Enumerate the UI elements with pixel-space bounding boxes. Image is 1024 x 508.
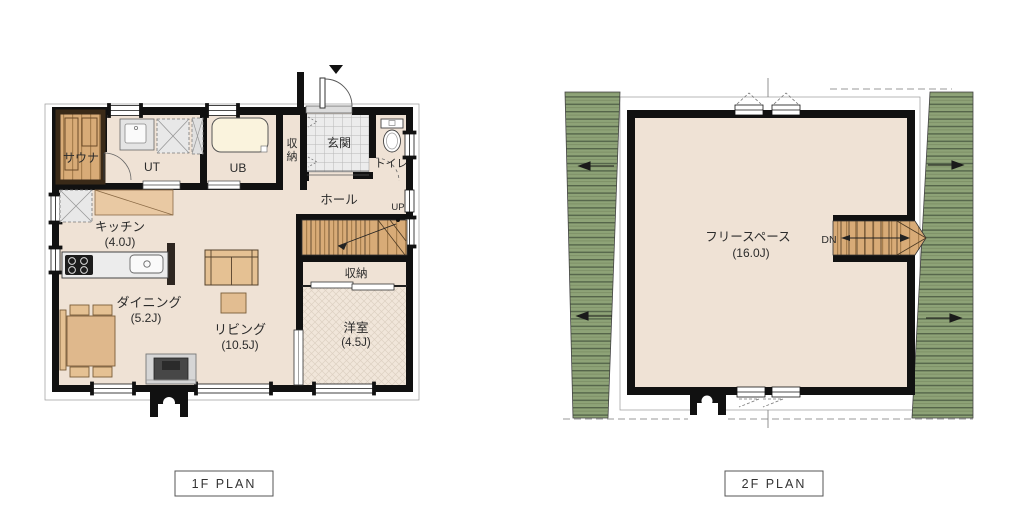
dining-set: [60, 305, 115, 377]
sofa: [205, 250, 258, 285]
chimney: [150, 391, 188, 417]
window: [195, 382, 273, 395]
plan-2f: フリースペース (16.0J) DN: [563, 78, 973, 428]
window: [772, 105, 800, 115]
room-kitchen-size: (4.0J): [105, 235, 136, 249]
room-western-size: (4.5J): [341, 337, 371, 349]
window: [108, 104, 143, 118]
stove-burners: [65, 255, 93, 275]
stairs-up-label: UP: [391, 202, 404, 213]
room-free-space-label: フリースペース: [705, 230, 790, 244]
room-living-label: リビング: [214, 322, 266, 337]
room-dining-size: (5.2J): [131, 311, 162, 325]
bench: [60, 310, 66, 370]
roof-right: [912, 92, 973, 418]
room-entrance-label: 玄関: [327, 135, 351, 150]
stairs-1f: [302, 218, 407, 255]
wood-stove: [146, 354, 196, 384]
dining-chair: [93, 367, 112, 377]
kitchen-counter: [62, 252, 168, 278]
window: [313, 382, 376, 395]
plan-title-2f: 2F PLAN: [725, 471, 823, 496]
western-room-door: [294, 330, 303, 385]
entrance-marker-triangle: [329, 65, 343, 74]
room-toilet-label: トイレ: [375, 158, 408, 170]
washing-machine: [157, 119, 189, 153]
room-stair-storage-label: 収納: [345, 267, 368, 280]
dining-table: [67, 316, 115, 366]
room-living-size: (10.5J): [221, 338, 258, 352]
dining-chair: [70, 305, 89, 315]
roof-left: [565, 92, 620, 418]
stair-wall-bottom: [833, 255, 915, 262]
kitchen-sink: [130, 255, 163, 273]
kitchen-cabinet: [95, 190, 173, 215]
dining-chair: [93, 305, 112, 315]
room-sauna-label: サウナ: [63, 151, 99, 165]
window: [735, 105, 763, 115]
window: [772, 387, 800, 397]
dining-chair: [70, 367, 89, 377]
window: [91, 382, 136, 395]
stairs-2f: [833, 221, 926, 255]
floorplan-page: サウナ UT UB 収納 玄関 トイレ ホール UP キッチン (4.0J) ダ…: [0, 0, 1024, 508]
sliding-door: [143, 181, 180, 189]
stairs-down-label: DN: [821, 234, 836, 246]
room-bath-label: UB: [230, 161, 247, 175]
window: [49, 246, 62, 274]
utility-sink: [120, 119, 154, 150]
room-dining-label: ダイニング: [116, 295, 181, 310]
plan-title-1f: 1F PLAN: [175, 471, 273, 496]
stair-wall-top: [833, 215, 915, 221]
refrigerator: [60, 190, 92, 222]
bathtub: [212, 118, 268, 152]
sliding-door: [208, 181, 240, 189]
floorplan-canvas: サウナ UT UB 収納 玄関 トイレ ホール UP キッチン (4.0J) ダ…: [0, 0, 1024, 508]
utility-shelf: [192, 118, 203, 154]
window: [737, 387, 765, 397]
window: [206, 104, 240, 118]
room-hall-label: ホール: [320, 193, 358, 207]
room-western-label: 洋室: [343, 320, 368, 335]
plan-1f: サウナ UT UB 収納 玄関 トイレ ホール UP キッチン (4.0J) ダ…: [45, 65, 419, 417]
coffee-table: [221, 293, 246, 313]
plan-title-2f-text: 2F PLAN: [742, 477, 807, 491]
entrance-door: [306, 78, 352, 113]
room-utility-label: UT: [144, 160, 161, 174]
room-kitchen-label: キッチン: [95, 220, 145, 234]
window: [403, 131, 416, 159]
chimney: [690, 390, 726, 415]
window: [405, 190, 414, 212]
plan-title-1f-text: 1F PLAN: [192, 477, 257, 491]
room-free-space-size: (16.0J): [732, 246, 769, 260]
